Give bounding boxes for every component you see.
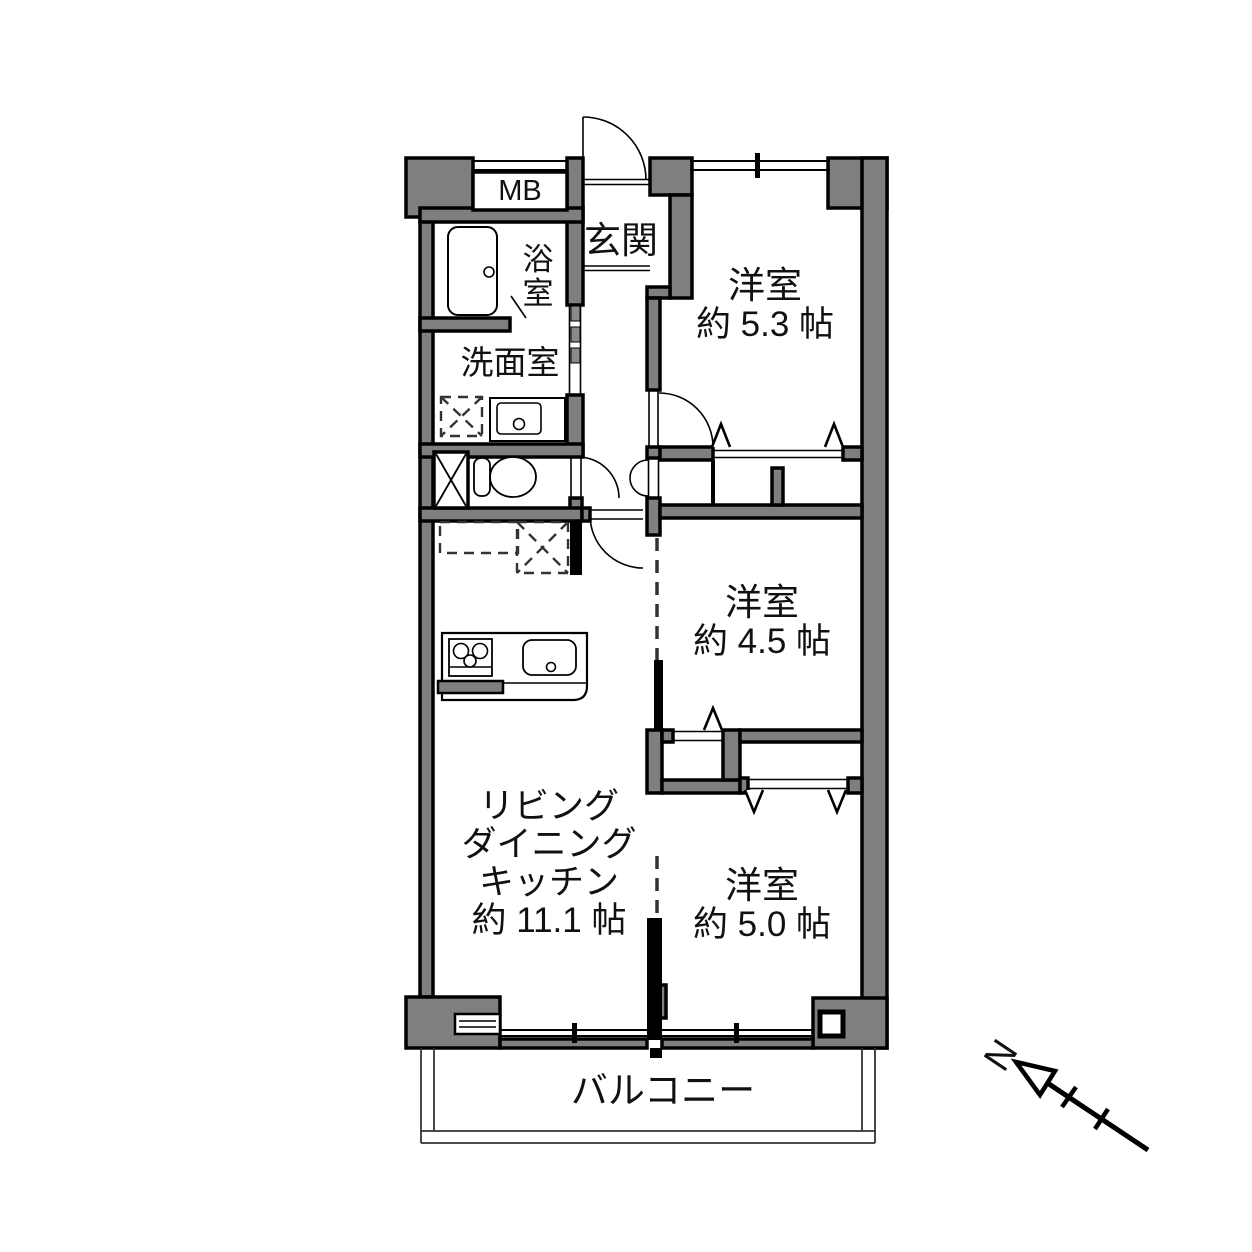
closet1-triangle-right	[825, 424, 843, 447]
closet50-triangle-left	[745, 790, 763, 812]
toilet-tank	[474, 458, 490, 496]
ldk-door-arc	[590, 515, 643, 568]
wall-closet1-top-right	[843, 447, 862, 460]
compass-arrowhead	[1016, 1062, 1055, 1095]
sliding-door-dashes	[571, 306, 580, 363]
window-tick-ldk	[573, 1024, 576, 1042]
label-ldk-2: ダイニング	[461, 825, 636, 864]
window-tick-b3	[735, 1024, 738, 1042]
window-tick-top	[756, 154, 759, 177]
wall-closet45-topstub	[662, 730, 673, 742]
label-bedroom2-size: 約 4.5 帖	[693, 622, 831, 661]
bedroom1-door-arc	[659, 393, 713, 447]
label-bedroom3-size: 約 5.0 帖	[693, 905, 831, 944]
wall-band2-left	[647, 730, 662, 793]
label-bedroom2-name: 洋室	[725, 582, 799, 623]
wall-bath-bottom	[420, 318, 510, 331]
washbasin-drain	[514, 419, 525, 430]
compass-north-label: N	[976, 1032, 1026, 1078]
compass-tick	[1095, 1109, 1108, 1129]
wall-closet50-top	[740, 730, 862, 742]
wall-closet1-divider	[772, 468, 783, 505]
closet45-triangle	[704, 708, 722, 730]
wall-hall-ldk-stub	[570, 521, 582, 575]
label-entrance: 玄関	[584, 220, 658, 261]
cupboard-space-box	[440, 522, 518, 553]
wall-right	[862, 158, 887, 1048]
label-ldk-size: 約 11.1 帖	[472, 901, 627, 940]
wall-ldk-bedroom3	[647, 918, 662, 1040]
wall-genkan-top-right	[650, 158, 692, 195]
label-ldk-1: リビング	[479, 787, 619, 826]
bathtub-drain	[484, 267, 494, 277]
label-bedroom3-name: 洋室	[725, 865, 799, 906]
wall-left	[420, 217, 433, 997]
pillar-vent-slot	[455, 1014, 500, 1034]
label-balcony: バルコニー	[571, 1070, 755, 1111]
closet50-triangle-right	[828, 790, 846, 812]
burner	[464, 655, 476, 667]
wall-closet1-left-bottom	[647, 498, 660, 535]
label-mb: MB	[498, 175, 542, 207]
wall-bedroom2-left	[654, 660, 663, 730]
wall-toilet-bottom	[420, 508, 582, 521]
wall-closet1-bottom	[660, 505, 862, 518]
label-bath-2: 室	[523, 276, 554, 311]
entrance-door-arc	[583, 117, 646, 180]
label-bedroom1-name: 洋室	[728, 265, 802, 306]
compass: N	[976, 1032, 1148, 1150]
label-ldk-3: キッチン	[479, 863, 619, 902]
wall-genkan-right-upper	[670, 195, 692, 298]
sink-drain	[547, 663, 556, 672]
kitchen-bar	[438, 681, 503, 693]
wall-band2-mid	[723, 730, 740, 780]
wall-mb-right-upper	[567, 158, 583, 305]
floor-plan: N MB 玄関 浴 室 洗面室 洋室 約 5.3 帖 洋室 約 4.5 帖 洋室…	[0, 0, 1252, 1252]
compass-shaft	[1040, 1078, 1148, 1150]
pillar-window-square	[820, 1012, 843, 1036]
walls-black	[570, 460, 715, 1058]
toilet-door-arc	[578, 457, 619, 498]
wall-closet1-top-left	[660, 447, 713, 460]
closet1-triangle-left	[712, 424, 730, 447]
wall-closet1-sep	[711, 460, 715, 505]
label-bedroom1-size: 約 5.3 帖	[696, 305, 834, 344]
wall-b3-balcony-tab	[650, 1048, 662, 1058]
hall-closet-doors-arc	[630, 460, 648, 496]
wall-hall-bedroom1	[647, 298, 660, 390]
wall-closet1-left-top	[647, 447, 660, 458]
label-washroom: 洗面室	[461, 344, 560, 381]
wall-closet50-bottom-right	[848, 778, 862, 793]
floor-plan-page: N MB 玄関 浴 室 洗面室 洋室 約 5.3 帖 洋室 約 4.5 帖 洋室…	[0, 0, 1252, 1252]
toilet-bowl	[490, 457, 536, 497]
wall-closet45-bottom	[662, 780, 740, 793]
wall-ldk-door-stub	[582, 508, 590, 521]
label-bath-1: 浴	[523, 242, 554, 277]
